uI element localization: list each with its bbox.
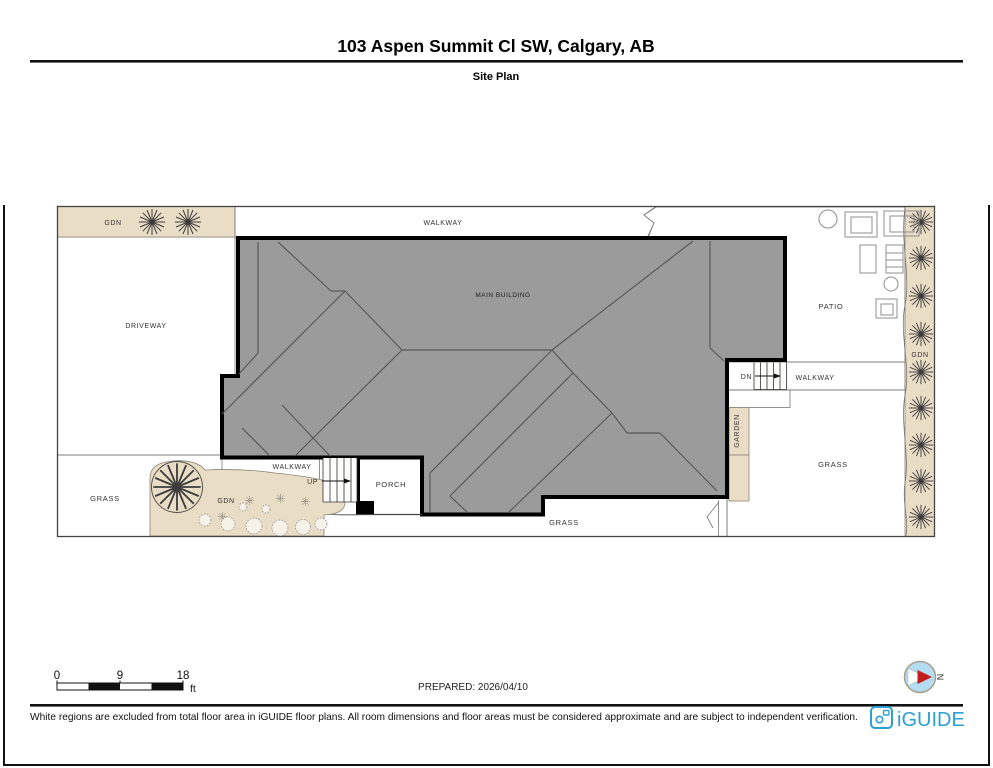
- walkway-right-label: WALKWAY: [796, 375, 835, 382]
- tree-icon: [909, 396, 933, 420]
- garden-label: GARDEN: [734, 414, 741, 448]
- tree-icon: [909, 433, 933, 457]
- walkway-right-extension: [727, 390, 790, 408]
- patio-table-icon: [884, 277, 898, 291]
- porch-post: [358, 501, 374, 514]
- brand-name: iGUIDE: [897, 709, 965, 731]
- tree-icon: [139, 209, 165, 235]
- dn-label: DN: [741, 374, 752, 381]
- stairs-down-area: DN: [741, 363, 787, 390]
- scale-tick-9: 9: [117, 670, 123, 682]
- building-footprint: [222, 238, 785, 515]
- tree-icon: [909, 210, 933, 234]
- prepared-date: PREPARED: 2026/04/10: [418, 682, 528, 693]
- driveway-label: DRIVEWAY: [125, 323, 166, 330]
- brand-logo: iGUIDE: [871, 707, 965, 731]
- site-plan-page: 103 Aspen Summit Cl SW, Calgary, AB Site…: [0, 0, 993, 768]
- scale-bar-segment: [89, 683, 121, 690]
- scale-bar: 0 9 18 ft: [54, 670, 196, 695]
- gdn-top-label: GDN: [104, 220, 121, 227]
- tree-icon: [909, 322, 933, 346]
- patio-sofa-icon: [886, 245, 903, 273]
- main-building-label: MAIN BUILDING: [475, 292, 530, 299]
- up-label: UP: [307, 479, 318, 486]
- scale-unit-label: ft: [190, 683, 196, 695]
- patio-table-icon: [819, 210, 837, 228]
- grass-fence-zigzag: [707, 502, 719, 528]
- gdn-bottom-label: GDN: [217, 498, 234, 505]
- page-subtitle: Site Plan: [473, 71, 520, 83]
- stairs-up: [323, 458, 357, 502]
- patio-label: PATIO: [819, 302, 844, 311]
- scale-tick-0: 0: [54, 670, 60, 682]
- footer-rule: [30, 704, 963, 707]
- grass-right-label: GRASS: [818, 460, 848, 469]
- brand-logo-lens: [876, 716, 882, 722]
- scale-bar-segment: [152, 683, 184, 690]
- tree-icon: [909, 246, 933, 270]
- garden-strip-lower: [729, 455, 749, 501]
- driveway-region: [58, 237, 236, 455]
- patio-lounge-icon: [860, 245, 876, 273]
- page-title: 103 Aspen Summit Cl SW, Calgary, AB: [337, 36, 654, 56]
- title-rule: [30, 60, 963, 63]
- large-tree-icon: [153, 463, 200, 510]
- grass-left-label: GRASS: [90, 494, 120, 503]
- brand-logo-viewfinder: [884, 711, 890, 716]
- tree-icon: [909, 505, 933, 529]
- footer-disclaimer: White regions are excluded from total fl…: [30, 712, 858, 723]
- main-building: MAIN BUILDING: [222, 238, 785, 515]
- compass-icon: N: [905, 662, 946, 693]
- tree-icon: [909, 469, 933, 493]
- porch-label: PORCH: [376, 480, 407, 489]
- site-plan-canvas: 103 Aspen Summit Cl SW, Calgary, AB Site…: [0, 0, 993, 768]
- grass-bottom-label: GRASS: [549, 518, 579, 527]
- patio-chair-cushion: [881, 304, 893, 315]
- walkway-top-label: WALKWAY: [424, 220, 463, 227]
- patio-chair-cushion: [851, 217, 872, 233]
- tree-icon: [909, 360, 933, 384]
- gdn-right-label: GDN: [911, 352, 928, 359]
- walkway-bottom-label: WALKWAY: [273, 464, 312, 471]
- compass-north-label: N: [935, 674, 945, 681]
- tree-icon: [175, 209, 201, 235]
- scale-tick-18: 18: [177, 670, 190, 682]
- tree-icon: [909, 284, 933, 308]
